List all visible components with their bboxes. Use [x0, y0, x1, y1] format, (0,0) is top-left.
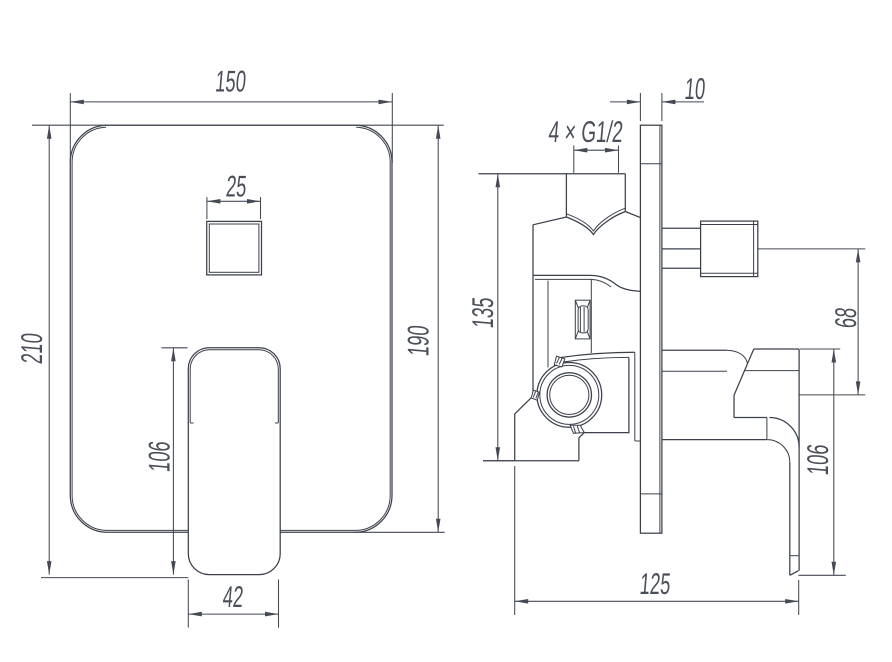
svg-text:4 × G1/2: 4 × G1/2 [547, 116, 624, 149]
svg-text:42: 42 [222, 580, 245, 614]
svg-text:106: 106 [801, 443, 835, 476]
svg-text:190: 190 [402, 324, 436, 357]
svg-text:135: 135 [466, 296, 500, 329]
svg-text:10: 10 [683, 73, 706, 107]
svg-text:68: 68 [829, 306, 863, 329]
svg-text:210: 210 [15, 332, 49, 365]
svg-text:150: 150 [214, 65, 247, 99]
svg-text:125: 125 [639, 568, 672, 602]
svg-text:25: 25 [225, 170, 248, 204]
svg-text:106: 106 [143, 440, 177, 473]
